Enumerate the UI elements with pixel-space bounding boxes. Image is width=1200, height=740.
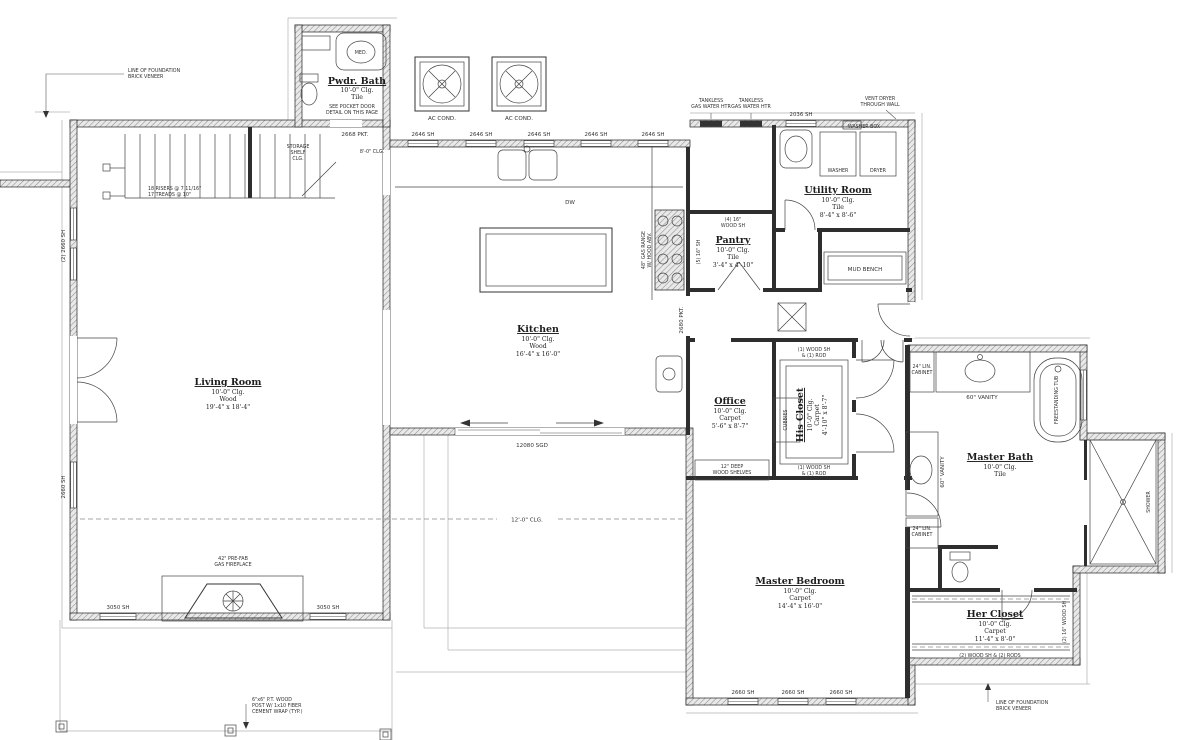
room-floor-master-bedroom: Carpet <box>789 595 811 602</box>
slider-arrows <box>460 420 604 427</box>
washer-box-label: WASHER BOX <box>848 124 881 130</box>
room-name-master-bath: Master Bath <box>967 452 1033 463</box>
foundation-note-top: LINE OF FOUNDATION <box>128 68 181 74</box>
room-name-powder-bath: Pwdr. Bath <box>328 76 386 87</box>
window-label: 2660 SH <box>732 690 755 696</box>
ac-condenser-label: AC COND. <box>505 116 533 122</box>
linen-cabinet-label: 24" LIN. <box>912 364 931 370</box>
room-dims-living: 19'-4" x 18'-4" <box>206 404 250 411</box>
range-label: W/ HOOD ABV. <box>647 233 653 268</box>
closet-fixtures <box>695 360 1070 650</box>
foundation-note-bottom: LINE OF FOUNDATION <box>996 700 1049 706</box>
storage-shelf-note: STORAGE <box>287 144 310 150</box>
porch-post <box>56 721 67 732</box>
window-label: 2646 SH <box>585 132 608 138</box>
window <box>778 699 808 705</box>
linen-cabinet-label: 24" LIN. <box>912 526 931 532</box>
window <box>71 248 77 280</box>
door-label-powder: 2668 PKT. <box>341 132 368 138</box>
post-note: 6"x6" P.T. WOOD <box>252 697 292 703</box>
floor-plan-sheet: Pwdr. Bath 10'-0" Clg. Tile SEE POCKET D… <box>0 0 1200 740</box>
post-note: POST W/ 1x10 FIBER <box>252 703 302 709</box>
stair-tread-note: 17 TREADS @ 10" <box>148 192 191 198</box>
window <box>100 614 136 620</box>
room-ceiling-utility: 10'-0" Clg. <box>821 197 854 204</box>
room-dims-her-closet: 11'-4" x 8'-0" <box>975 636 1016 643</box>
range-label: 48" GAS RANGE <box>641 231 647 269</box>
vanity-left <box>906 432 938 516</box>
window <box>71 462 77 508</box>
fireplace-note: GAS FIREPLACE <box>214 562 251 568</box>
stair-riser-note: 18 RISERS @ 7 11/16" <box>148 186 201 192</box>
stairs <box>103 134 335 199</box>
ac-condensers <box>415 57 546 111</box>
room-dims-his-closet: 4'-10" x 8'-7" <box>822 395 829 436</box>
window-label: 2660 SH <box>782 690 805 696</box>
room-ceiling-living: 10'-0" Clg. <box>211 389 244 396</box>
room-floor-pantry: Tile <box>727 254 739 261</box>
gas-range <box>655 210 684 290</box>
cubbies-label: CUBBIES <box>783 410 789 431</box>
tub-label: FREESTANDING TUB <box>1054 376 1060 424</box>
tankless-label: GAS WATER HTR <box>691 104 731 110</box>
his-closet-doors <box>856 360 894 452</box>
window <box>1081 370 1087 420</box>
vent-dryer-note: VENT DRYER <box>865 96 896 102</box>
mud-bench-label: MUD BENCH <box>848 267 883 273</box>
window-label: (2) 2660 SH <box>61 230 67 262</box>
room-ceiling-her-closet: 10'-0" Clg. <box>978 621 1011 628</box>
room-ceiling-office: 10'-0" Clg. <box>713 408 746 415</box>
foundation-note-bottom: BRICK VENEER <box>996 706 1032 712</box>
room-dims-office: 5'-6" x 8'-7" <box>712 423 749 430</box>
room-floor-kitchen: Wood <box>529 343 546 350</box>
his-closet-rod-note: & (1) ROD <box>802 353 827 359</box>
shower-label: SHOWER <box>1146 491 1152 513</box>
room-name-his-closet: His Closet <box>795 387 806 442</box>
room-dims-kitchen: 16'-4" x 16'-0" <box>516 351 560 358</box>
window-label: 2646 SH <box>528 132 551 138</box>
porch-posts <box>56 721 391 740</box>
room-name-kitchen: Kitchen <box>517 324 559 335</box>
room-name-master-bedroom: Master Bedroom <box>755 576 844 587</box>
pantry-side-shelves-note: (5) 16" SH <box>696 239 702 264</box>
his-closet-rod-note: (1) WOOD SH <box>798 465 831 471</box>
window-label: 2646 SH <box>412 132 435 138</box>
office-shelves-note: 12" DEEP <box>721 464 744 470</box>
her-closet-side-note: (2) 16" WOOD SH <box>1062 600 1068 643</box>
room-ceiling-kitchen: 10'-0" Clg. <box>521 336 554 343</box>
understair-closet-door <box>302 162 336 196</box>
window-label: 2660 SH <box>830 690 853 696</box>
prep-sink <box>656 356 682 392</box>
room-floor-office: Carpet <box>719 415 741 422</box>
pantry-shelves-note: (4) 16" <box>725 217 742 223</box>
kitchen-island <box>480 228 612 292</box>
pocket-door-note: SEE POCKET DOOR <box>329 104 376 110</box>
window <box>826 699 856 705</box>
window <box>466 141 496 147</box>
window-label: 3050 SH <box>317 605 340 611</box>
fireplace-note: 42" PRE-FAB <box>218 556 248 562</box>
french-doors <box>77 338 117 422</box>
window <box>71 208 77 240</box>
med-cabinet-label: MED. <box>355 50 367 56</box>
room-name-living: Living Room <box>195 377 262 388</box>
window-label: 2646 SH <box>470 132 493 138</box>
ac-condenser-label: AC COND. <box>428 116 456 122</box>
washer-label: WASHER <box>828 168 849 174</box>
tankless-label: TANKLESS <box>698 98 723 104</box>
room-name-pantry: Pantry <box>716 235 751 246</box>
kitchen-sink <box>498 146 557 180</box>
utility-door <box>785 200 815 230</box>
room-ceiling-master-bedroom: 10'-0" Clg. <box>783 588 816 595</box>
master-bath-door <box>907 493 941 527</box>
room-floor-powder-bath: Tile <box>351 94 363 101</box>
window <box>786 121 816 127</box>
his-closet-rod-note: & (1) ROD <box>802 471 827 477</box>
room-dims-utility: 8'-4" x 8'-6" <box>820 212 857 219</box>
utility-sink <box>780 130 812 168</box>
ceiling-height-label: 12'-0" CLG. <box>511 518 543 524</box>
pocket-door-note: DETAIL ON THIS PAGE <box>326 110 378 116</box>
room-floor-his-closet: Carpet <box>814 404 821 426</box>
post-note: CEMENT WRAP (TYP.) <box>252 709 303 715</box>
her-closet-rod-note: (2) WOOD SH & (2) RODS <box>959 653 1020 659</box>
room-ceiling-pantry: 10'-0" Clg. <box>716 247 749 254</box>
linen-cabinet-label: CABINET <box>912 532 933 538</box>
room-dims-master-bedroom: 14'-4" x 16'-0" <box>778 603 822 610</box>
dryer-label: DRYER <box>870 168 887 174</box>
ac-condenser <box>492 57 546 111</box>
attic-access <box>778 303 806 331</box>
pantry-shelves-note: WOOD SH <box>721 223 746 229</box>
room-floor-master-bath: Tile <box>994 471 1006 478</box>
room-floor-her-closet: Carpet <box>984 628 1006 635</box>
room-ceiling-his-closet: 10'-0" Clg. <box>807 398 814 431</box>
vestibule-doors <box>862 340 903 362</box>
window <box>408 141 438 147</box>
window <box>581 141 611 147</box>
window <box>310 614 346 620</box>
storage-shelf-note: CLG. <box>292 156 303 162</box>
window-label: 2646 SH <box>642 132 665 138</box>
dishwasher-label: DW <box>565 200 575 206</box>
vanity-top <box>936 352 1030 392</box>
door-label-slider: 12080 SGD <box>516 443 548 449</box>
vanity-label: 60" VANITY <box>940 456 946 488</box>
vanity-label: 60" VANITY <box>966 395 998 401</box>
window <box>638 141 668 147</box>
window-label: 2036 SH <box>790 112 813 118</box>
floor-plan-drawing: Pwdr. Bath 10'-0" Clg. Tile SEE POCKET D… <box>0 0 1200 740</box>
back-door <box>878 304 910 336</box>
vent-dryer-note: THROUGH WALL <box>859 102 899 108</box>
under-stair-ceiling-note: 8'-0" CLG. <box>360 149 384 155</box>
room-dims-pantry: 3'-4" x 4'-10" <box>713 262 754 269</box>
room-name-utility: Utility Room <box>804 185 871 196</box>
porch-post <box>225 725 236 736</box>
room-floor-living: Wood <box>219 396 236 403</box>
room-ceiling-powder-bath: 10'-0" Clg. <box>340 87 373 94</box>
tankless-label: GAS WATER HTR <box>731 104 771 110</box>
window <box>524 141 554 147</box>
room-ceiling-master-bath: 10'-0" Clg. <box>983 464 1016 471</box>
toilet <box>950 552 970 582</box>
office-shelves-note: WOOD SHELVES <box>713 470 752 476</box>
storage-shelf-note: SHELF <box>290 150 305 156</box>
door-label-office: 2680 PKT. <box>679 306 685 333</box>
foundation-note-top: BRICK VENEER <box>128 74 164 80</box>
window <box>728 699 758 705</box>
his-closet-rod-note: (1) WOOD SH <box>798 347 831 353</box>
tankless-label: TANKLESS <box>738 98 763 104</box>
exterior-walls <box>0 25 1165 705</box>
powder-bath-fixtures <box>300 33 386 105</box>
linen-cabinet-label: CABINET <box>912 370 933 376</box>
window-label: 3050 SH <box>107 605 130 611</box>
window-label: 2660 SH <box>61 476 67 499</box>
ac-condenser <box>415 57 469 111</box>
room-name-office: Office <box>714 396 746 407</box>
room-name-her-closet: Her Closet <box>967 609 1024 620</box>
room-floor-utility: Tile <box>832 204 844 211</box>
